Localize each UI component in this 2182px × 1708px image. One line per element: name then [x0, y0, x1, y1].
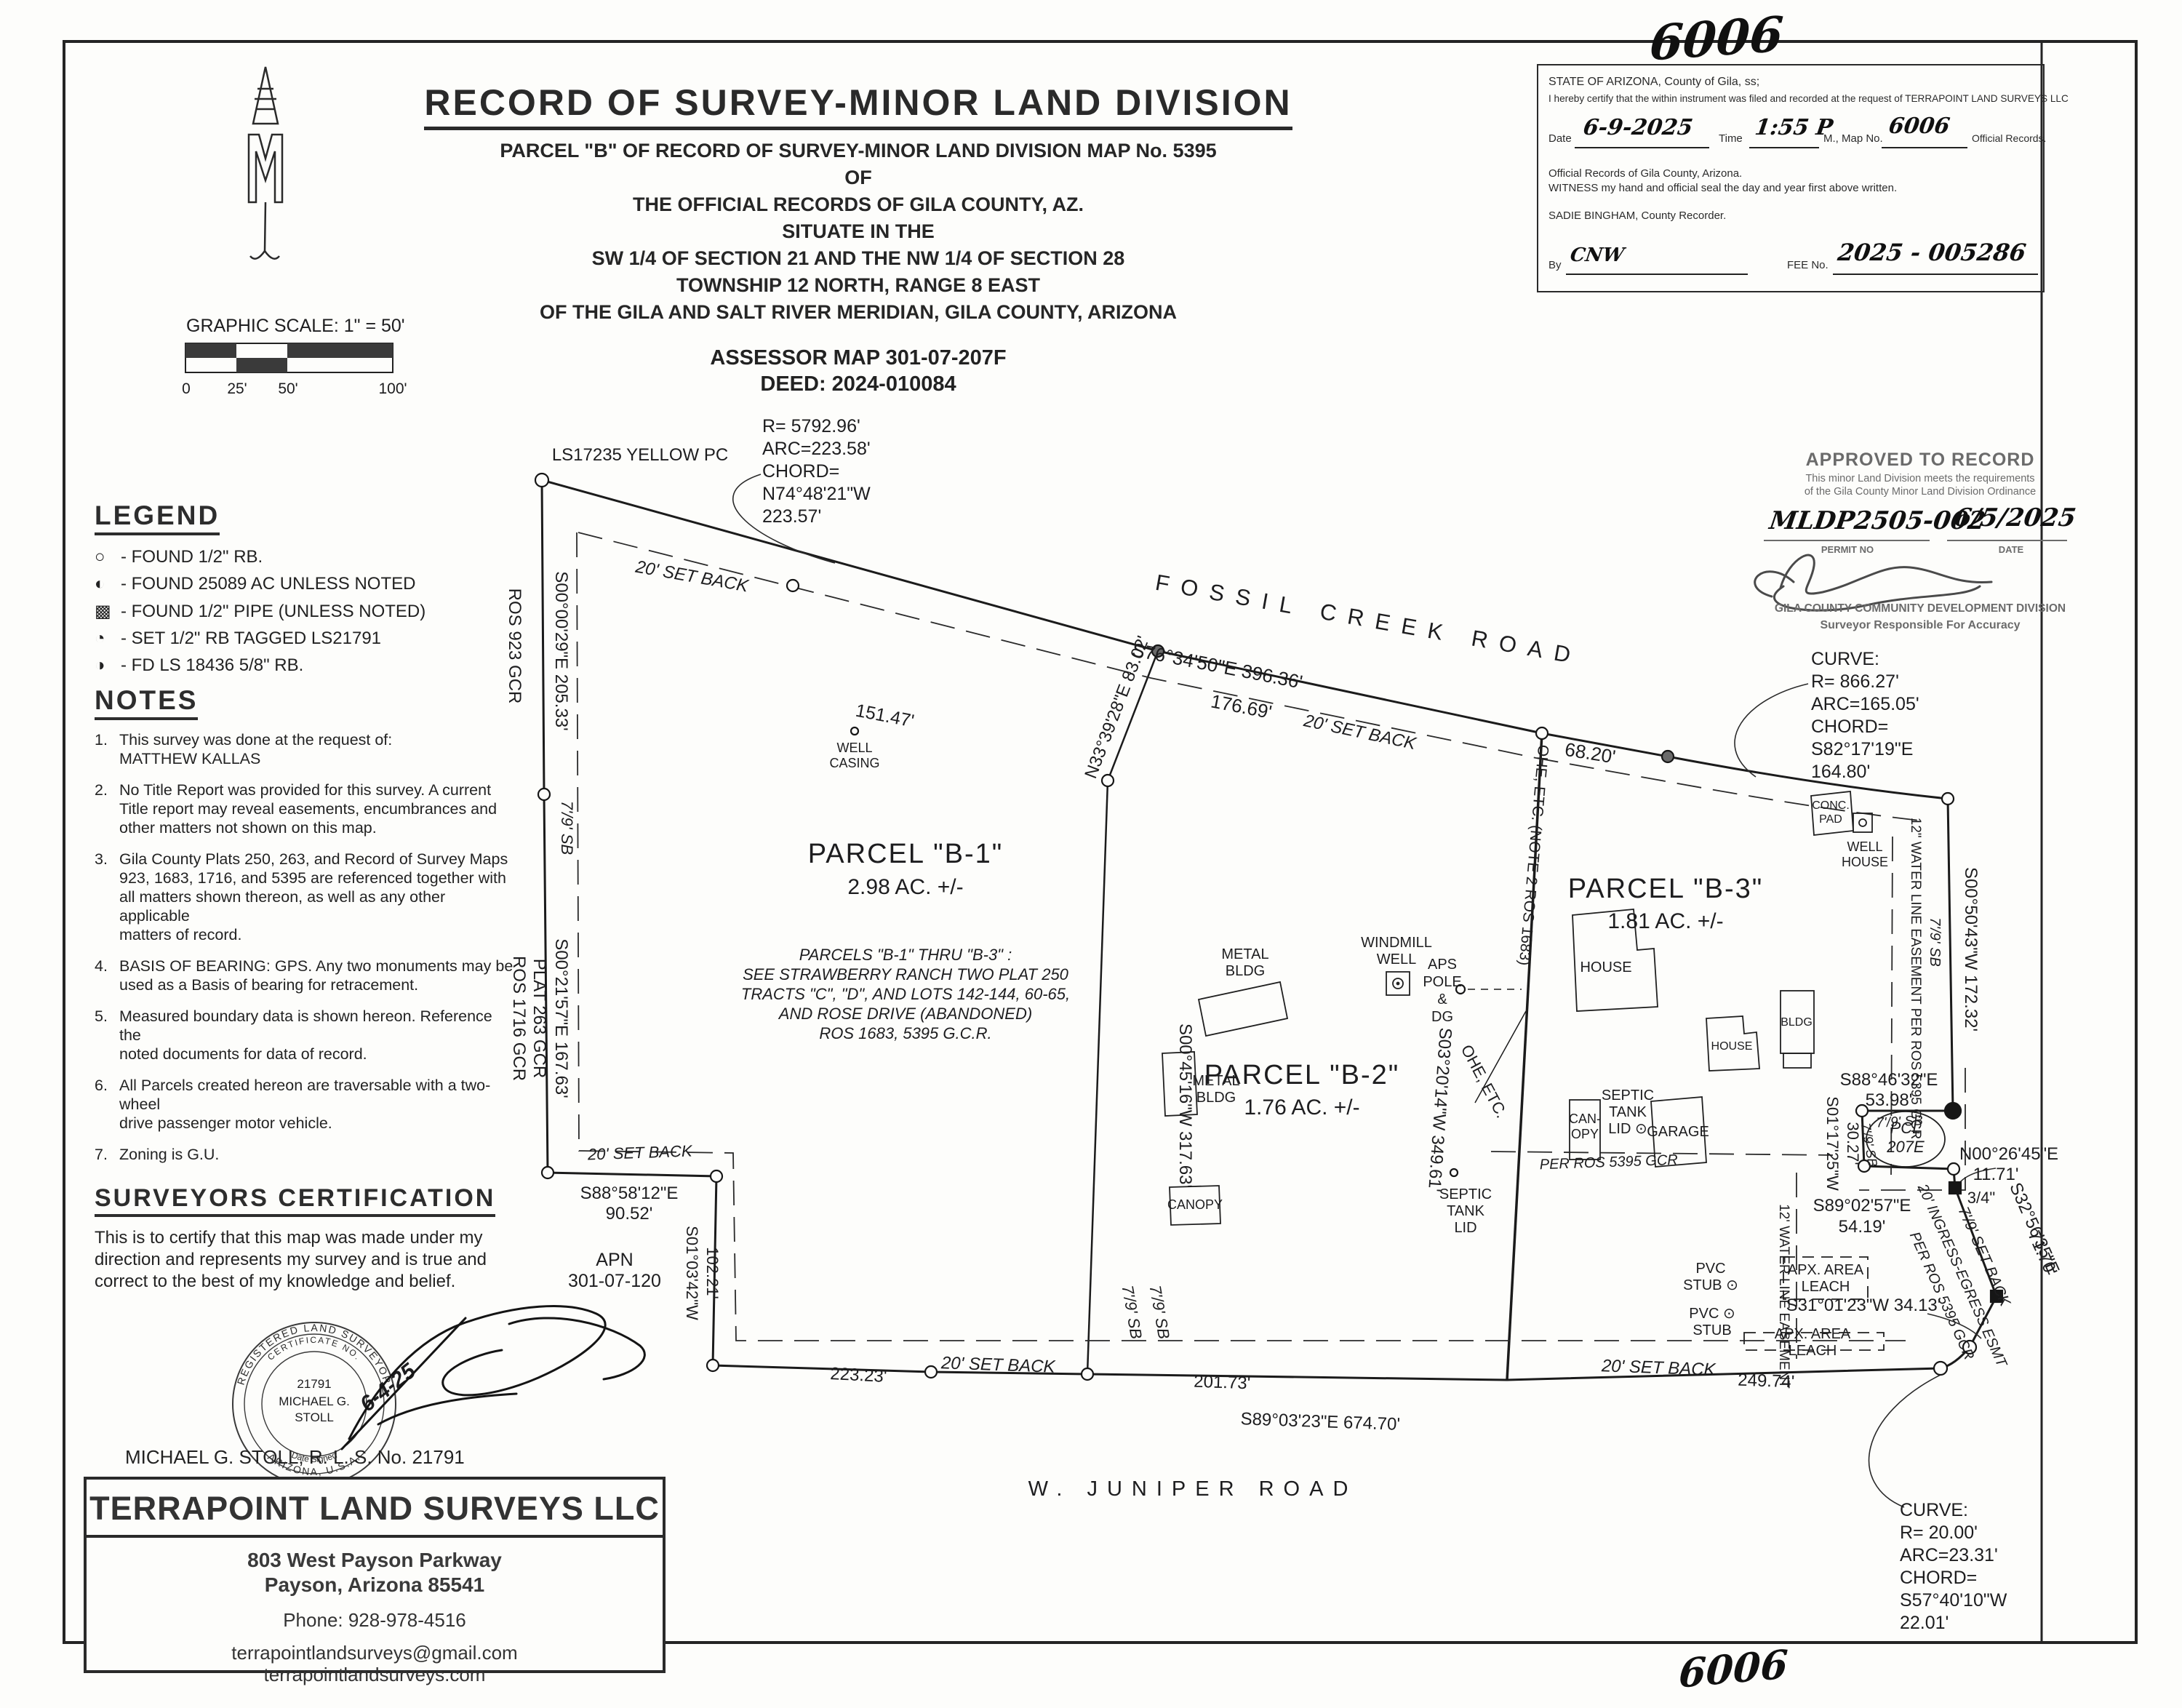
well-house-outline: [1853, 813, 1872, 832]
deed-number: DEED: 2024-010084: [167, 371, 1549, 397]
brg-s010342-label: S01°03'42"W: [683, 1226, 701, 1320]
dim-151-47-label: 151.47': [854, 701, 916, 732]
stamp-agency: GILA COUNTY COMMUNITY DEVELOPMENT DIVISI…: [1764, 602, 2077, 615]
canopy-b3-label: CAN-OPY: [1569, 1112, 1601, 1141]
brg-s890257-label: S89°02'57"E: [1813, 1196, 1911, 1216]
curve-20-label: CURVE:R= 20.00'ARC=23.31'CHORD=S57°40'10…: [1900, 1500, 2007, 1633]
pcl-207e-label: PCL207E: [1886, 1119, 1925, 1156]
apn-301-07-120-label: APN301-07-120: [568, 1250, 661, 1291]
note-text: Zoning is G.U.: [119, 1145, 219, 1164]
brg-n002645-label: N00°26'45"E: [1959, 1144, 2058, 1164]
dim-201-73-label: 201.73': [1194, 1372, 1251, 1394]
brg-s002157-label: S00°21'57"E 167.63': [551, 938, 571, 1098]
metal-bldg-1-label: METALBLDG: [1221, 946, 1268, 979]
stamp-line2: of the Gila County Minor Land Division O…: [1764, 486, 2077, 498]
note-item: 1.This survey was done at the request of…: [95, 730, 516, 768]
page-title: RECORD OF SURVEY-MINOR LAND DIVISION: [424, 81, 1292, 130]
map-no-value: 6006: [1887, 113, 1951, 139]
parcel-b2-area-label: 1.76 AC. +/-: [1244, 1096, 1359, 1120]
notes-list: 1.This survey was done at the request of…: [95, 730, 516, 1164]
fee-label: FEE No.: [1787, 259, 1829, 271]
parcel-b1-name-label: PARCEL "B-1": [808, 839, 1004, 869]
canopy-b2-label: CANOPY: [1167, 1197, 1223, 1212]
note-item: 7.Zoning is G.U.: [95, 1145, 516, 1164]
note-item: 3.Gila County Plats 250, 263, and Record…: [95, 850, 516, 944]
seal-name-2: STOLL: [295, 1410, 334, 1424]
dim-223-23-label: 223.23': [830, 1364, 887, 1386]
recorder-name: SADIE BINGHAM, County Recorder.: [1548, 209, 1726, 222]
sb-left-label: 7'/9' SB: [558, 801, 576, 855]
brg-s004516-label: S00°45'16"W 317.63': [1175, 1023, 1195, 1188]
well-casing-label: WELLCASING: [829, 741, 879, 770]
division-lines: [1087, 651, 1542, 1380]
legend-heading: LEGEND: [95, 500, 220, 535]
time-label: Time: [1719, 132, 1743, 145]
note-text: No Title Report was provided for this su…: [119, 781, 497, 837]
title-sub-line: OF THE GILA AND SALT RIVER MERIDIAN, GIL…: [167, 299, 1549, 326]
per-ros-5395-b3-label: PER ROS 5395 GCR: [1539, 1152, 1678, 1173]
setback-left-b-label: 20' SET BACK: [587, 1141, 694, 1163]
brg-s310123-label: S31°01'23"W 34.13': [1786, 1296, 1941, 1315]
legend-item-label: - FD LS 18436 5/8" RB.: [121, 655, 303, 676]
parcel-b1-area-label: 2.98 AC. +/-: [847, 875, 963, 899]
dim-11-71-label: 11.71': [1973, 1165, 2019, 1184]
legend-item: ◑- FD LS 18436 5/8" RB.: [95, 655, 458, 676]
seal-name-1: MICHAEL G.: [279, 1394, 350, 1408]
found-half-inch-pipe-icon: ▩: [95, 601, 121, 622]
legend-item: ◔- SET 1/2" RB TAGGED LS21791: [95, 628, 458, 649]
note-text: BASIS OF BEARING: GPS. Any two monuments…: [119, 957, 513, 994]
approval-date-label: DATE: [1982, 544, 2040, 555]
parcel-note-label: PARCELS "B-1" THRU "B-3" :SEE STRAWBERRY…: [741, 946, 1070, 1042]
well-house-label: WELLHOUSE: [1842, 839, 1888, 869]
stamp-title: APPROVED TO RECORD: [1764, 450, 2077, 471]
legend-items: ○- FOUND 1/2" RB.◐- FOUND 25089 AC UNLES…: [95, 547, 458, 676]
sb-b1-b-label: 7'/9' SB: [1146, 1284, 1174, 1341]
title-subtitle: PARCEL "B" OF RECORD OF SURVEY-MINOR LAN…: [167, 137, 1549, 326]
pvc-stub-2-label: PVC ⊙STUB: [1689, 1306, 1735, 1338]
firm-phone: Phone: 928-978-4516: [87, 1609, 663, 1632]
notes-block: NOTES 1.This survey was done at the requ…: [95, 685, 516, 1176]
certification-line: correct to the best of my knowledge and …: [95, 1271, 516, 1293]
assessor-deed: ASSESSOR MAP 301-07-207F DEED: 2024-0100…: [167, 345, 1549, 397]
surveyor-name-line: MICHAEL G. STOLL, R. L. S. No. 21791: [125, 1446, 465, 1469]
firm-name: TERRAPOINT LAND SURVEYS LLC: [87, 1480, 663, 1538]
note-text: Measured boundary data is shown hereon. …: [119, 1007, 516, 1063]
legend-item: ▩- FOUND 1/2" PIPE (UNLESS NOTED): [95, 601, 458, 622]
legend-item-label: - FOUND 1/2" PIPE (UNLESS NOTED): [121, 602, 425, 622]
approval-date-value: 6/5/2025: [1952, 503, 2077, 532]
title-sub-line: PARCEL "B" OF RECORD OF SURVEY-MINOR LAN…: [167, 137, 1549, 164]
ohe-note-label: OHE, ETC. (NOTE 2 ROS 1683): [1516, 744, 1551, 966]
curve-5792-label: R= 5792.96'ARC=223.58'CHORD=N74°48'21"W2…: [762, 416, 871, 527]
sheet-number-bottom: 6006: [1678, 1640, 1789, 1697]
note-number: 7.: [95, 1145, 119, 1164]
by-label: By: [1548, 259, 1562, 271]
found-25089-ac-icon: ◐: [95, 574, 121, 594]
pvc-stub-1-label: PVCSTUB ⊙: [1683, 1261, 1738, 1293]
seal-signed-date: 6-4-25: [356, 1358, 421, 1416]
dim-176-69-label: 176.69': [1209, 690, 1274, 723]
certification-line: This is to certify that this map was mad…: [95, 1227, 516, 1249]
brg-s005043-label: S00°50'43"W 172.32': [1961, 867, 1981, 1031]
leach-area-1-label: APX. AREALEACH: [1788, 1262, 1864, 1295]
title-sub-line: SW 1/4 OF SECTION 21 AND THE NW 1/4 OF S…: [167, 245, 1549, 272]
fee-value: 2025 - 005286: [1836, 239, 2028, 266]
dim-54-19-label: 54.19': [1839, 1217, 1886, 1237]
note-number: 3.: [95, 850, 119, 944]
title-sub-line: SITUATE IN THE: [167, 218, 1549, 245]
legend-item-label: - FOUND 1/2" RB.: [121, 547, 263, 567]
note-number: 6.: [95, 1076, 119, 1133]
firm-address-line1: 803 West Payson Parkway: [87, 1548, 663, 1573]
legend-block: LEGEND ○- FOUND 1/2" RB.◐- FOUND 25089 A…: [95, 500, 458, 682]
brg-n333928-label: N33°39'28"E 83.02': [1081, 634, 1154, 781]
brg-s885812-label: S88°58'12"E: [580, 1184, 679, 1203]
firm-email: terrapointlandsurveys@gmail.com: [87, 1642, 663, 1664]
house-1-label: HOUSE: [1580, 959, 1631, 975]
notes-heading: NOTES: [95, 685, 198, 720]
mon-3-4-inch-label: 3/4": [1967, 1189, 1995, 1207]
stamp-line1: This minor Land Division meets the requi…: [1764, 473, 2077, 484]
note-item: 4.BASIS OF BEARING: GPS. Any two monumen…: [95, 957, 516, 994]
time-value: 1:55 P: [1754, 115, 1835, 140]
plat-263-gcr-label: PLAT 263 GCR: [529, 959, 549, 1079]
house-2-label: HOUSE: [1711, 1040, 1753, 1053]
windmill-well-label: WINDMILLWELL: [1361, 935, 1432, 967]
stamp-tagline: Surveyor Responsible For Accuracy: [1764, 619, 2077, 632]
setback-bot-c-label: 20' SET BACK: [1601, 1356, 1717, 1380]
note-item: 5.Measured boundary data is shown hereon…: [95, 1007, 516, 1063]
recorder-state-line: STATE OF ARIZONA, County of Gila, ss;: [1548, 76, 1759, 89]
legend-item: ◐- FOUND 25089 AC UNLESS NOTED: [95, 574, 458, 594]
found-half-inch-rebar-icon: ○: [95, 547, 121, 567]
recorder-line4: WITNESS my hand and official seal the da…: [1548, 182, 1897, 194]
date-label: Date: [1548, 132, 1572, 145]
note-item: 6.All Parcels created hereon are travers…: [95, 1076, 516, 1133]
dim-53-98-label: 53.98': [1866, 1090, 1913, 1110]
recorder-line3: Official Records of Gila County, Arizona…: [1548, 167, 1742, 180]
certification-line: direction and represents my survey and i…: [95, 1249, 516, 1271]
permit-number-label: PERMIT NO: [1793, 544, 1902, 555]
metal-bldg-2-label: METALBLDG: [1192, 1073, 1239, 1106]
title-sub-line: THE OFFICIAL RECORDS OF GILA COUNTY, AZ.: [167, 191, 1549, 218]
brg-s011725-label: S01°17'25"W: [1823, 1096, 1842, 1191]
note-text: All Parcels created hereon are traversab…: [119, 1076, 516, 1133]
conc-pad-label: CONC.PAD: [1812, 799, 1850, 826]
note-text: Gila County Plats 250, 263, and Record o…: [119, 850, 516, 944]
parcel-b3-area-label: 1.81 AC. +/-: [1607, 909, 1723, 933]
firm-contact: terrapointlandsurveys@gmail.com terrapoi…: [87, 1642, 663, 1685]
found-ls18436-rebar-icon: ◑: [95, 655, 121, 676]
title-sub-line: OF: [167, 164, 1549, 191]
setback-top-a-label: 20' SET BACK: [634, 557, 751, 596]
firm-address-line2: Payson, Arizona 85541: [87, 1573, 663, 1597]
note-number: 5.: [95, 1007, 119, 1063]
road-juniper-label: W. JUNIPER ROAD: [1028, 1477, 1358, 1501]
official-records-label: Official Records.: [1972, 132, 2046, 144]
map-no-label: M., Map No.: [1823, 132, 1883, 145]
sb-b1-a-label: 7'/9' SB: [1119, 1284, 1146, 1341]
firm-address: 803 West Payson Parkway Payson, Arizona …: [87, 1548, 663, 1597]
dim-249-74-label: 249.74': [1738, 1370, 1795, 1392]
firm-block: TERRAPOINT LAND SURVEYS LLC 803 West Pay…: [84, 1477, 666, 1673]
note-number: 4.: [95, 957, 119, 994]
certification-block: SURVEYORS CERTIFICATION This is to certi…: [95, 1184, 516, 1293]
legend-item: ○- FOUND 1/2" RB.: [95, 547, 458, 567]
setback-top-b-label: 20' SET BACK: [1301, 711, 1418, 754]
set-half-inch-rebar-icon: ◔: [95, 628, 121, 649]
sheet-number-top: 6006: [1647, 5, 1785, 71]
note-item: 2.No Title Report was provided for this …: [95, 781, 516, 837]
legend-item-label: - FOUND 25089 AC UNLESS NOTED: [121, 574, 415, 594]
septic-tank-b2-label: SEPTICTANKLID: [1439, 1186, 1492, 1236]
recorder-certify-line: I hereby certify that the within instrum…: [1548, 93, 2069, 104]
assessor-map-number: ASSESSOR MAP 301-07-207F: [167, 345, 1549, 371]
title-sub-line: TOWNSHIP 12 NORTH, RANGE 8 EAST: [167, 272, 1549, 299]
survey-sheet: REGISTERED LAND SURVEYOR CERTIFICATE NO.…: [0, 0, 2182, 1708]
sb-right-label: 7'/9' SB: [1927, 917, 1943, 967]
metal-building-1-outline: [1199, 982, 1287, 1036]
note-text: This survey was done at the request of:M…: [119, 730, 392, 768]
dim-102-21-label: 102.21': [703, 1247, 722, 1299]
certification-heading: SURVEYORS CERTIFICATION: [95, 1184, 495, 1217]
bldg-b3-label: BLDG: [1781, 1016, 1813, 1029]
legend-item-label: - SET 1/2" RB TAGGED LS21791: [121, 628, 381, 649]
curve-866-label: CURVE:R= 866.27'ARC=165.05'CHORD=S82°17'…: [1811, 649, 1919, 782]
date-value: 6-9-2025: [1582, 115, 1695, 140]
firm-website: terrapointlandsurveys.com: [87, 1664, 663, 1685]
brg-s890323-label: S89°03'23"E 674.70': [1240, 1409, 1400, 1434]
brg-s763450-label: S76°34'50"E 396.36': [1130, 639, 1304, 693]
recorder-block: STATE OF ARIZONA, County of Gila, ss; I …: [1537, 64, 2045, 292]
brg-s000029-label: S00°00'29"E 205.33': [551, 571, 571, 730]
note-number: 1.: [95, 730, 119, 768]
note-number: 2.: [95, 781, 119, 837]
setback-lines: [577, 532, 1965, 1359]
garage-label: GARAGE: [1647, 1124, 1709, 1140]
parcel-b3-name-label: PARCEL "B-3": [1568, 874, 1764, 904]
seal-number: 21791: [297, 1377, 331, 1391]
mon-ls17235-label: LS17235 YELLOW PC: [552, 445, 728, 465]
dim-90-52-label: 90.52': [606, 1204, 653, 1224]
certification-text: This is to certify that this map was mad…: [95, 1227, 516, 1293]
brg-s884632-label: S88°46'32"E: [1840, 1070, 1938, 1090]
setback-bot-b-label: 20' SET BACK: [940, 1353, 1056, 1377]
title-block: RECORD OF SURVEY-MINOR LAND DIVISION PAR…: [167, 81, 1549, 397]
dim-68-20-label: 68.20': [1563, 738, 1617, 768]
brg-s032014-label: S03°20'14"W 349.61': [1424, 1027, 1455, 1192]
by-value: CNW: [1569, 244, 1626, 266]
